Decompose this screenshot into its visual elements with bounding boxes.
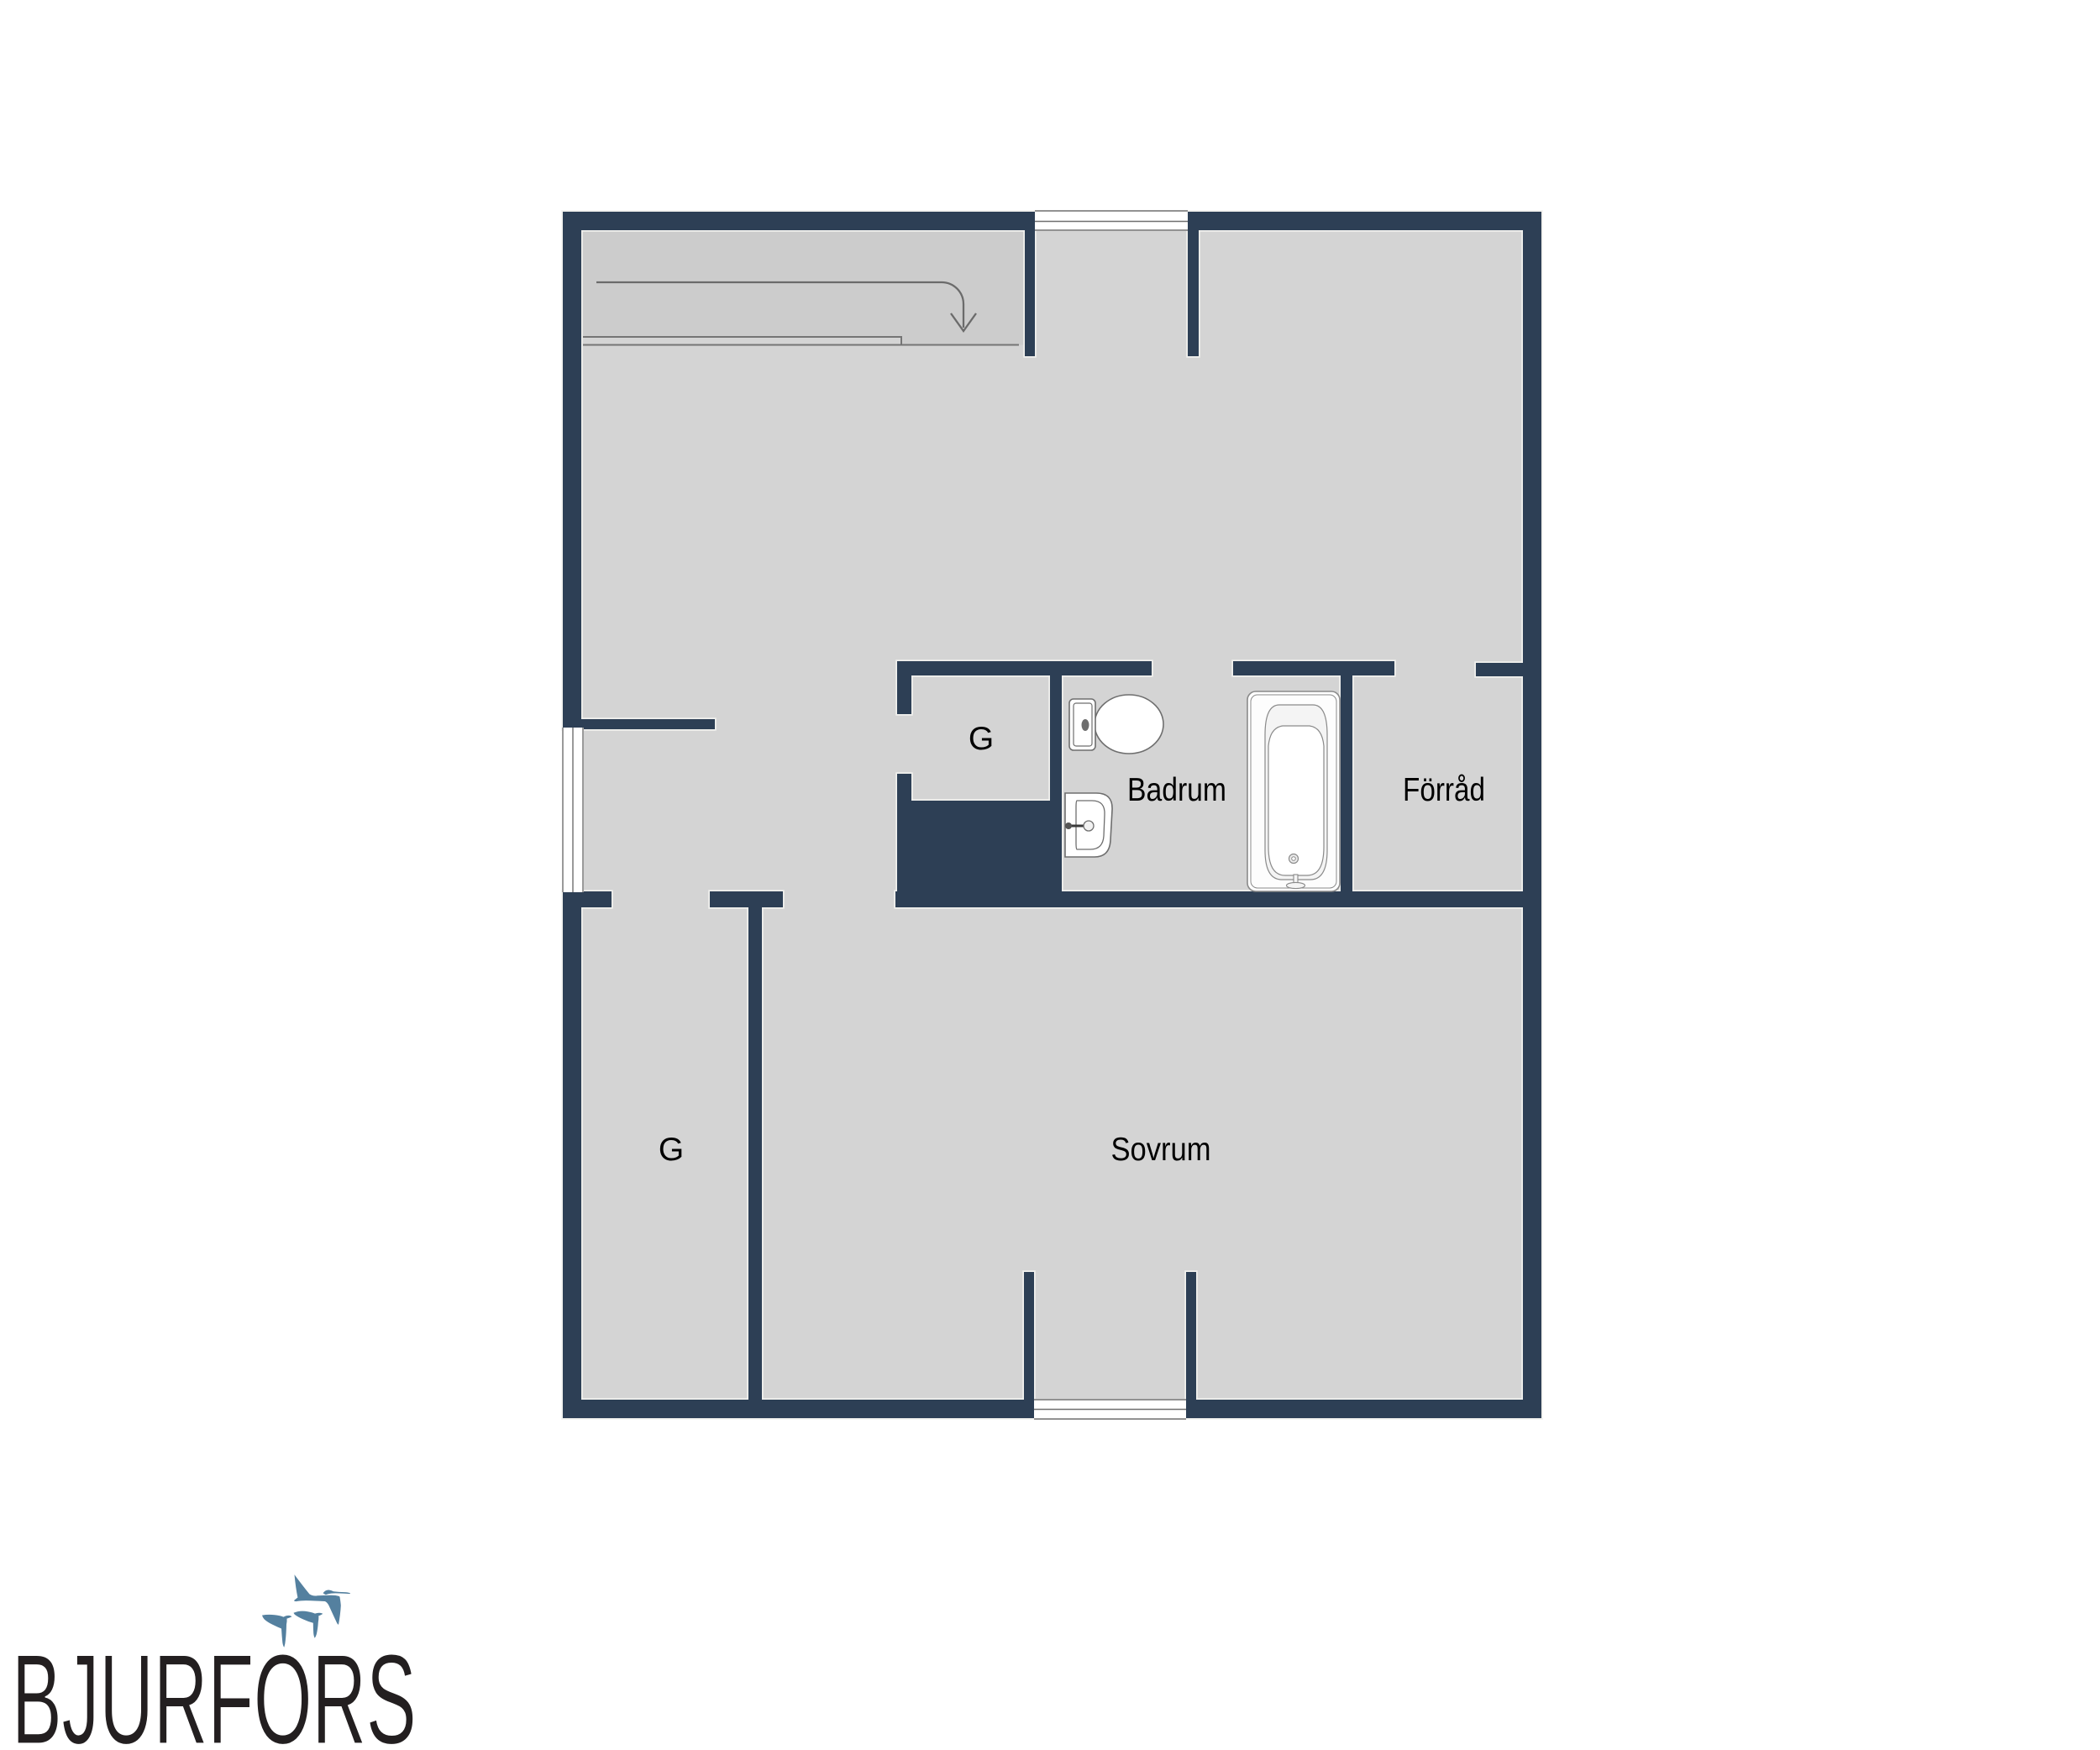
svg-text:Förråd: Förråd	[1403, 772, 1485, 808]
svg-text:G: G	[969, 721, 994, 757]
svg-text:Badrum: Badrum	[1127, 772, 1226, 808]
svg-text:Sovrum: Sovrum	[1111, 1132, 1211, 1168]
svg-text:G: G	[659, 1132, 684, 1168]
svg-text:BJURFORS: BJURFORS	[12, 1628, 417, 1750]
